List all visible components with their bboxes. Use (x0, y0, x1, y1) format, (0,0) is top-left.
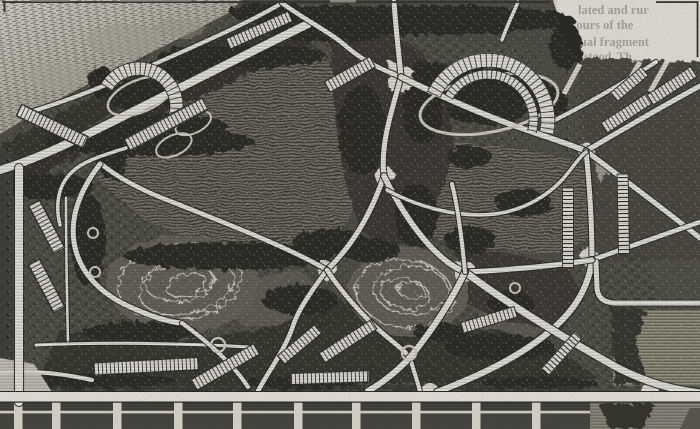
svg-text:sual fragment: sual fragment (575, 35, 650, 49)
svg-text:lated and rur: lated and rur (578, 3, 649, 17)
